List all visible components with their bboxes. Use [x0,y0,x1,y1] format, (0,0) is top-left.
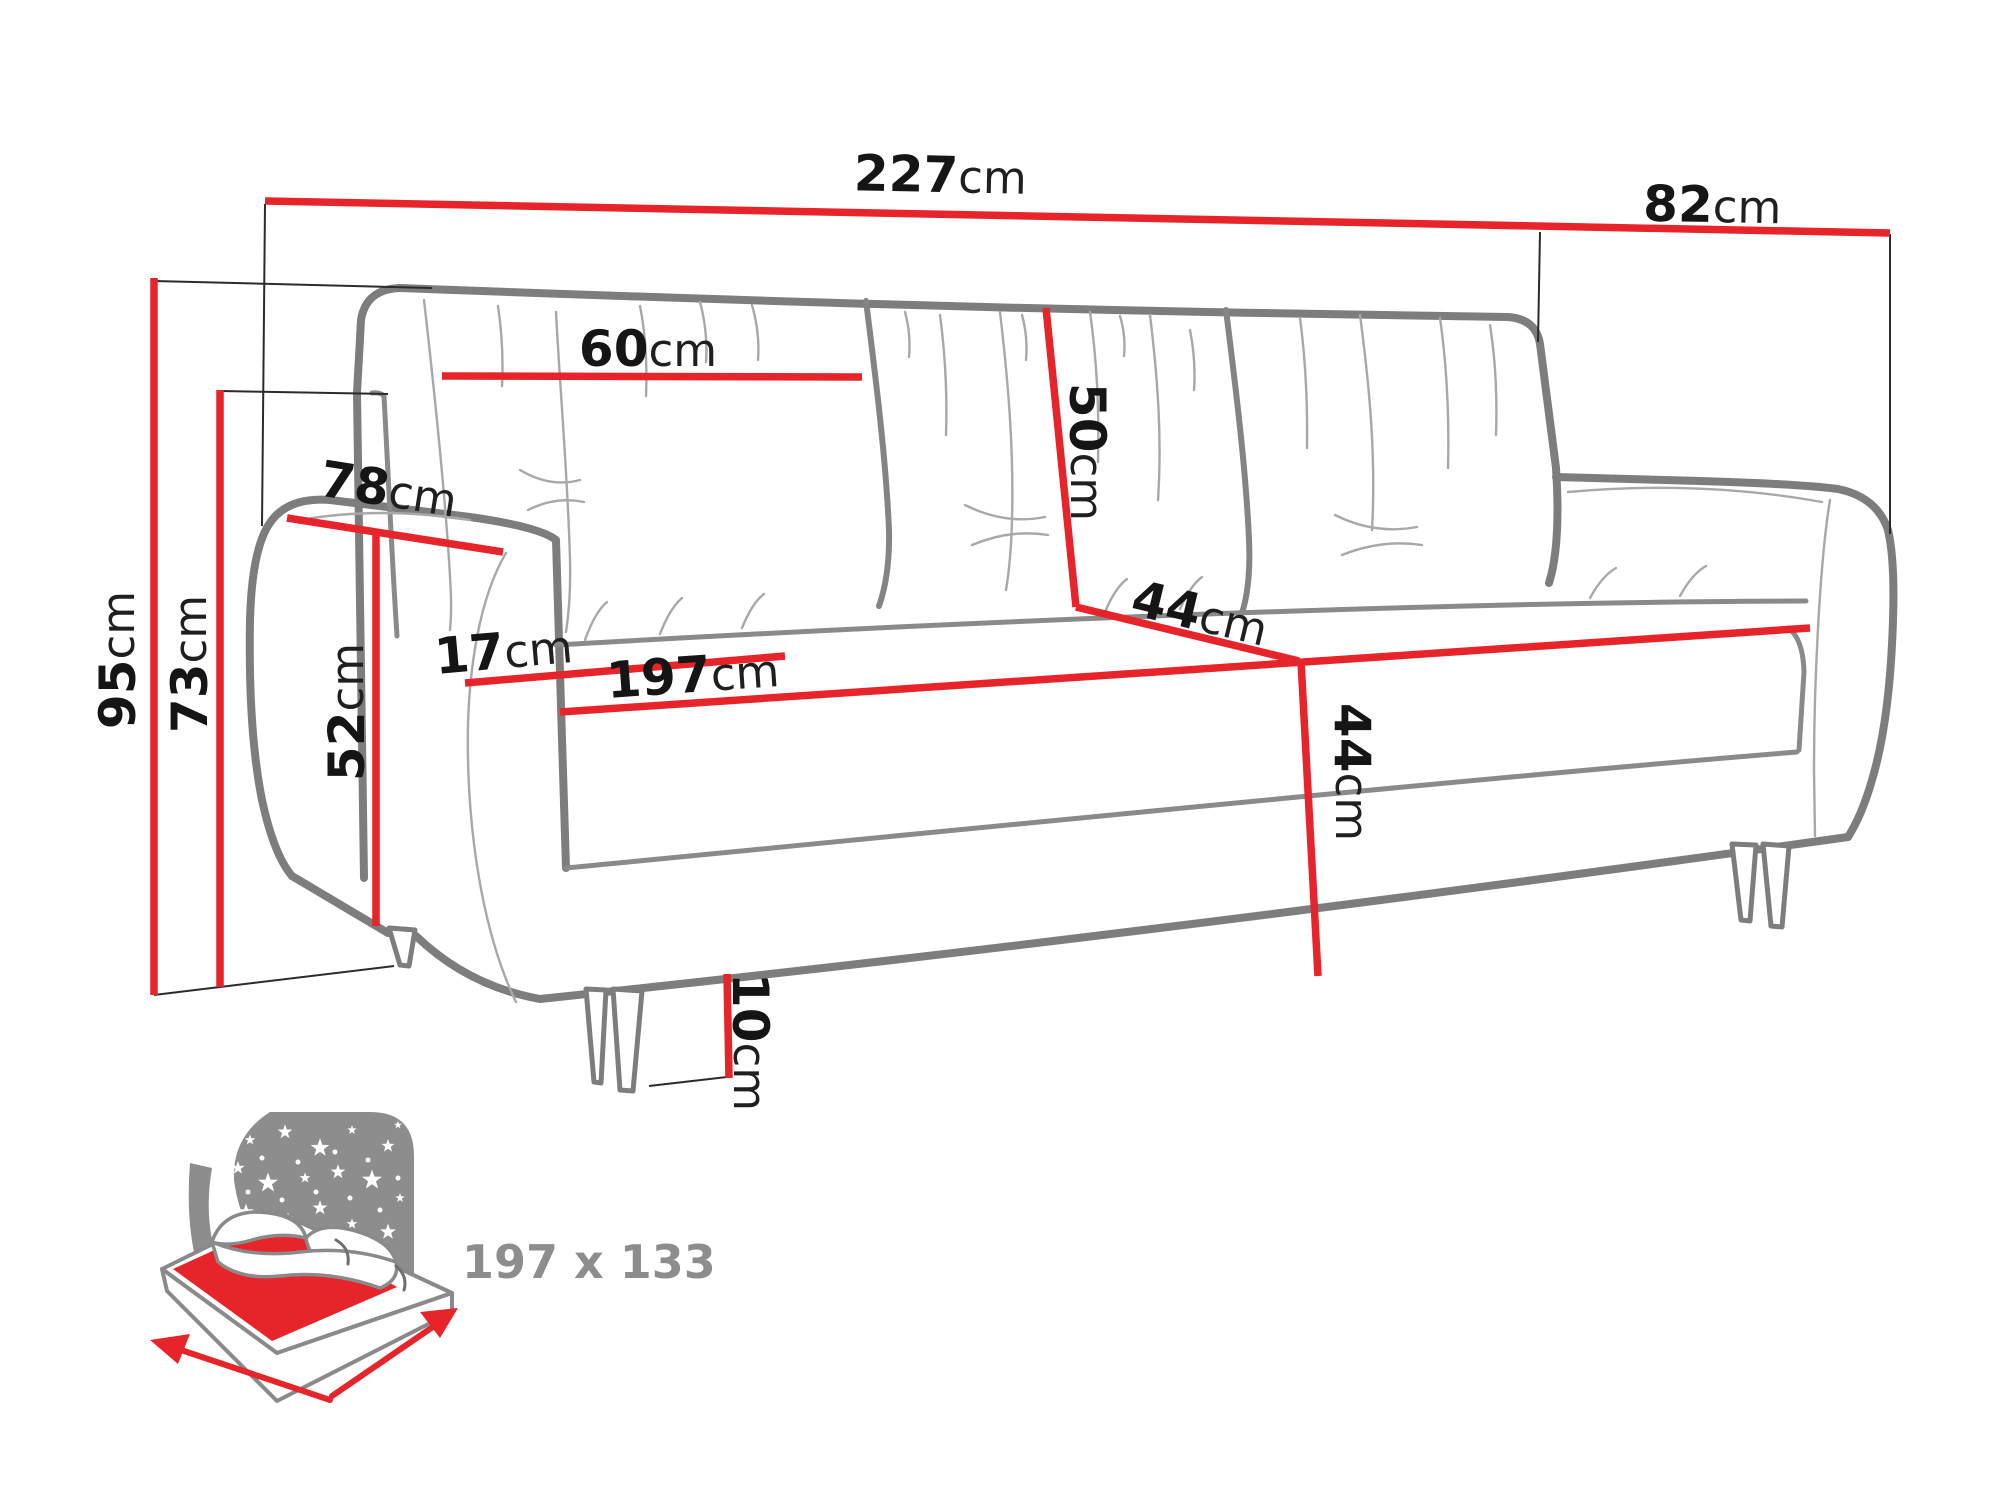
left-armrest-front-contour [468,553,516,1002]
seat-cushion-right-corner [1788,628,1804,750]
label-overall-height: 95cm [89,591,147,729]
front-leg-1 [586,989,606,1083]
label-back-cushion-width: 60cm [579,320,717,378]
label-seat-depth: 44cm [1126,569,1274,658]
sofa-legs [389,844,1789,1091]
helper-height-top [154,281,432,288]
seat-base-seam [566,752,1797,868]
back-cushion-divider-2 [1226,310,1249,613]
front-leg-2 [613,989,642,1091]
helper-width-depth-tick [1538,232,1540,342]
right-armrest-inner-contour [1814,500,1830,836]
helper-armtop-height [220,391,388,394]
right-leg-2 [1763,844,1789,927]
label-seat-height: 44cm [1323,703,1381,841]
sofa-dimension-diagram: 227cm 82cm 60cm 78cm 17cm 197cm 44cm 95c… [0,0,2000,1499]
sofa-backrest-outline [400,288,1557,583]
label-arm-depth: 78cm [316,450,462,529]
right-armrest-top-crease [1568,488,1822,502]
label-overall-width: 227cm [853,144,1027,206]
sleeping-area-label: 197 x 133 [462,1235,716,1289]
dim-line-seat-height [1301,661,1318,976]
label-leg-height: 10cm [721,973,779,1111]
helper-leg-height [649,1077,727,1086]
label-arm-top-height: 73cm [161,595,219,733]
right-leg-1 [1732,844,1756,921]
label-overall-depth: 82cm [1643,175,1782,235]
back-cushion-divider-1 [866,301,889,606]
label-arm-inner-height: 52cm [318,643,376,781]
diagram-canvas: 227cm 82cm 60cm 78cm 17cm 197cm 44cm 95c… [0,0,2000,1499]
dim-line-arm-depth [287,518,503,552]
left-armrest-inner-edge [556,540,566,868]
back-left-leg [389,928,415,966]
label-back-cushion-height: 50cm [1058,383,1116,521]
left-armrest-outline [250,500,556,876]
helper-width-left-tick [262,204,265,526]
sleeping-area-icon: 197 x 133 [150,1112,716,1401]
right-armrest-outline [1556,477,1893,837]
helper-lines [154,204,1890,1086]
helper-height-bottom [154,966,394,995]
